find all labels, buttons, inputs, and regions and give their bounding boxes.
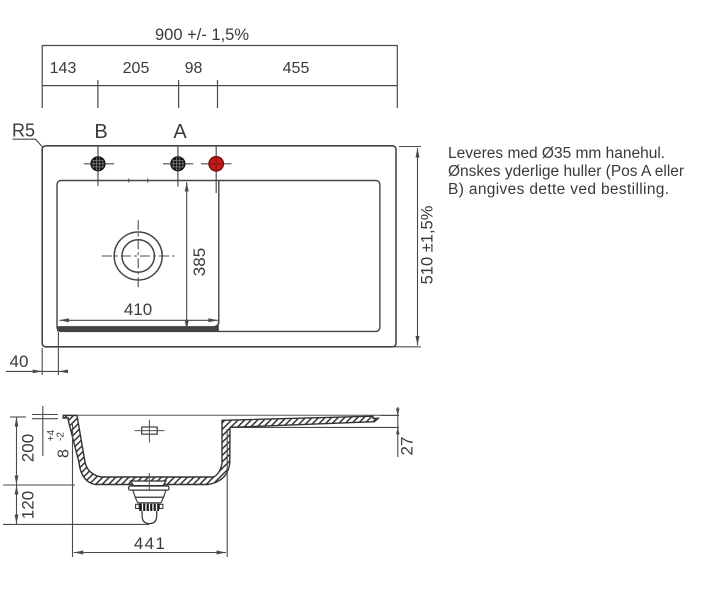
svg-text:98: 98 (185, 60, 203, 77)
svg-text:900 +/- 1,5%: 900 +/- 1,5% (155, 26, 249, 44)
svg-text:385: 385 (190, 248, 209, 276)
svg-text:143: 143 (50, 60, 77, 77)
svg-text:A: A (173, 121, 187, 143)
svg-text:40: 40 (10, 352, 29, 371)
svg-text:R5: R5 (12, 121, 35, 141)
svg-text:-2: -2 (56, 432, 67, 441)
svg-text:B: B (94, 121, 107, 143)
svg-text:455: 455 (283, 60, 310, 77)
svg-text:27: 27 (398, 437, 417, 456)
svg-text:B) angives dette ved bestillin: B) angives dette ved bestilling. (448, 181, 669, 198)
svg-text:510 ±1,5%: 510 ±1,5% (419, 205, 437, 284)
svg-text:410: 410 (124, 300, 152, 319)
svg-text:8: 8 (56, 449, 73, 458)
svg-text:441: 441 (134, 534, 166, 553)
svg-text:120: 120 (19, 491, 38, 519)
svg-text:200: 200 (19, 434, 38, 462)
svg-text:205: 205 (123, 60, 150, 77)
svg-text:Leveres med Ø35 mm hanehul.: Leveres med Ø35 mm hanehul. (448, 145, 665, 162)
svg-text:Ønskes yderlige huller (Pos A: Ønskes yderlige huller (Pos A eller (448, 163, 684, 180)
